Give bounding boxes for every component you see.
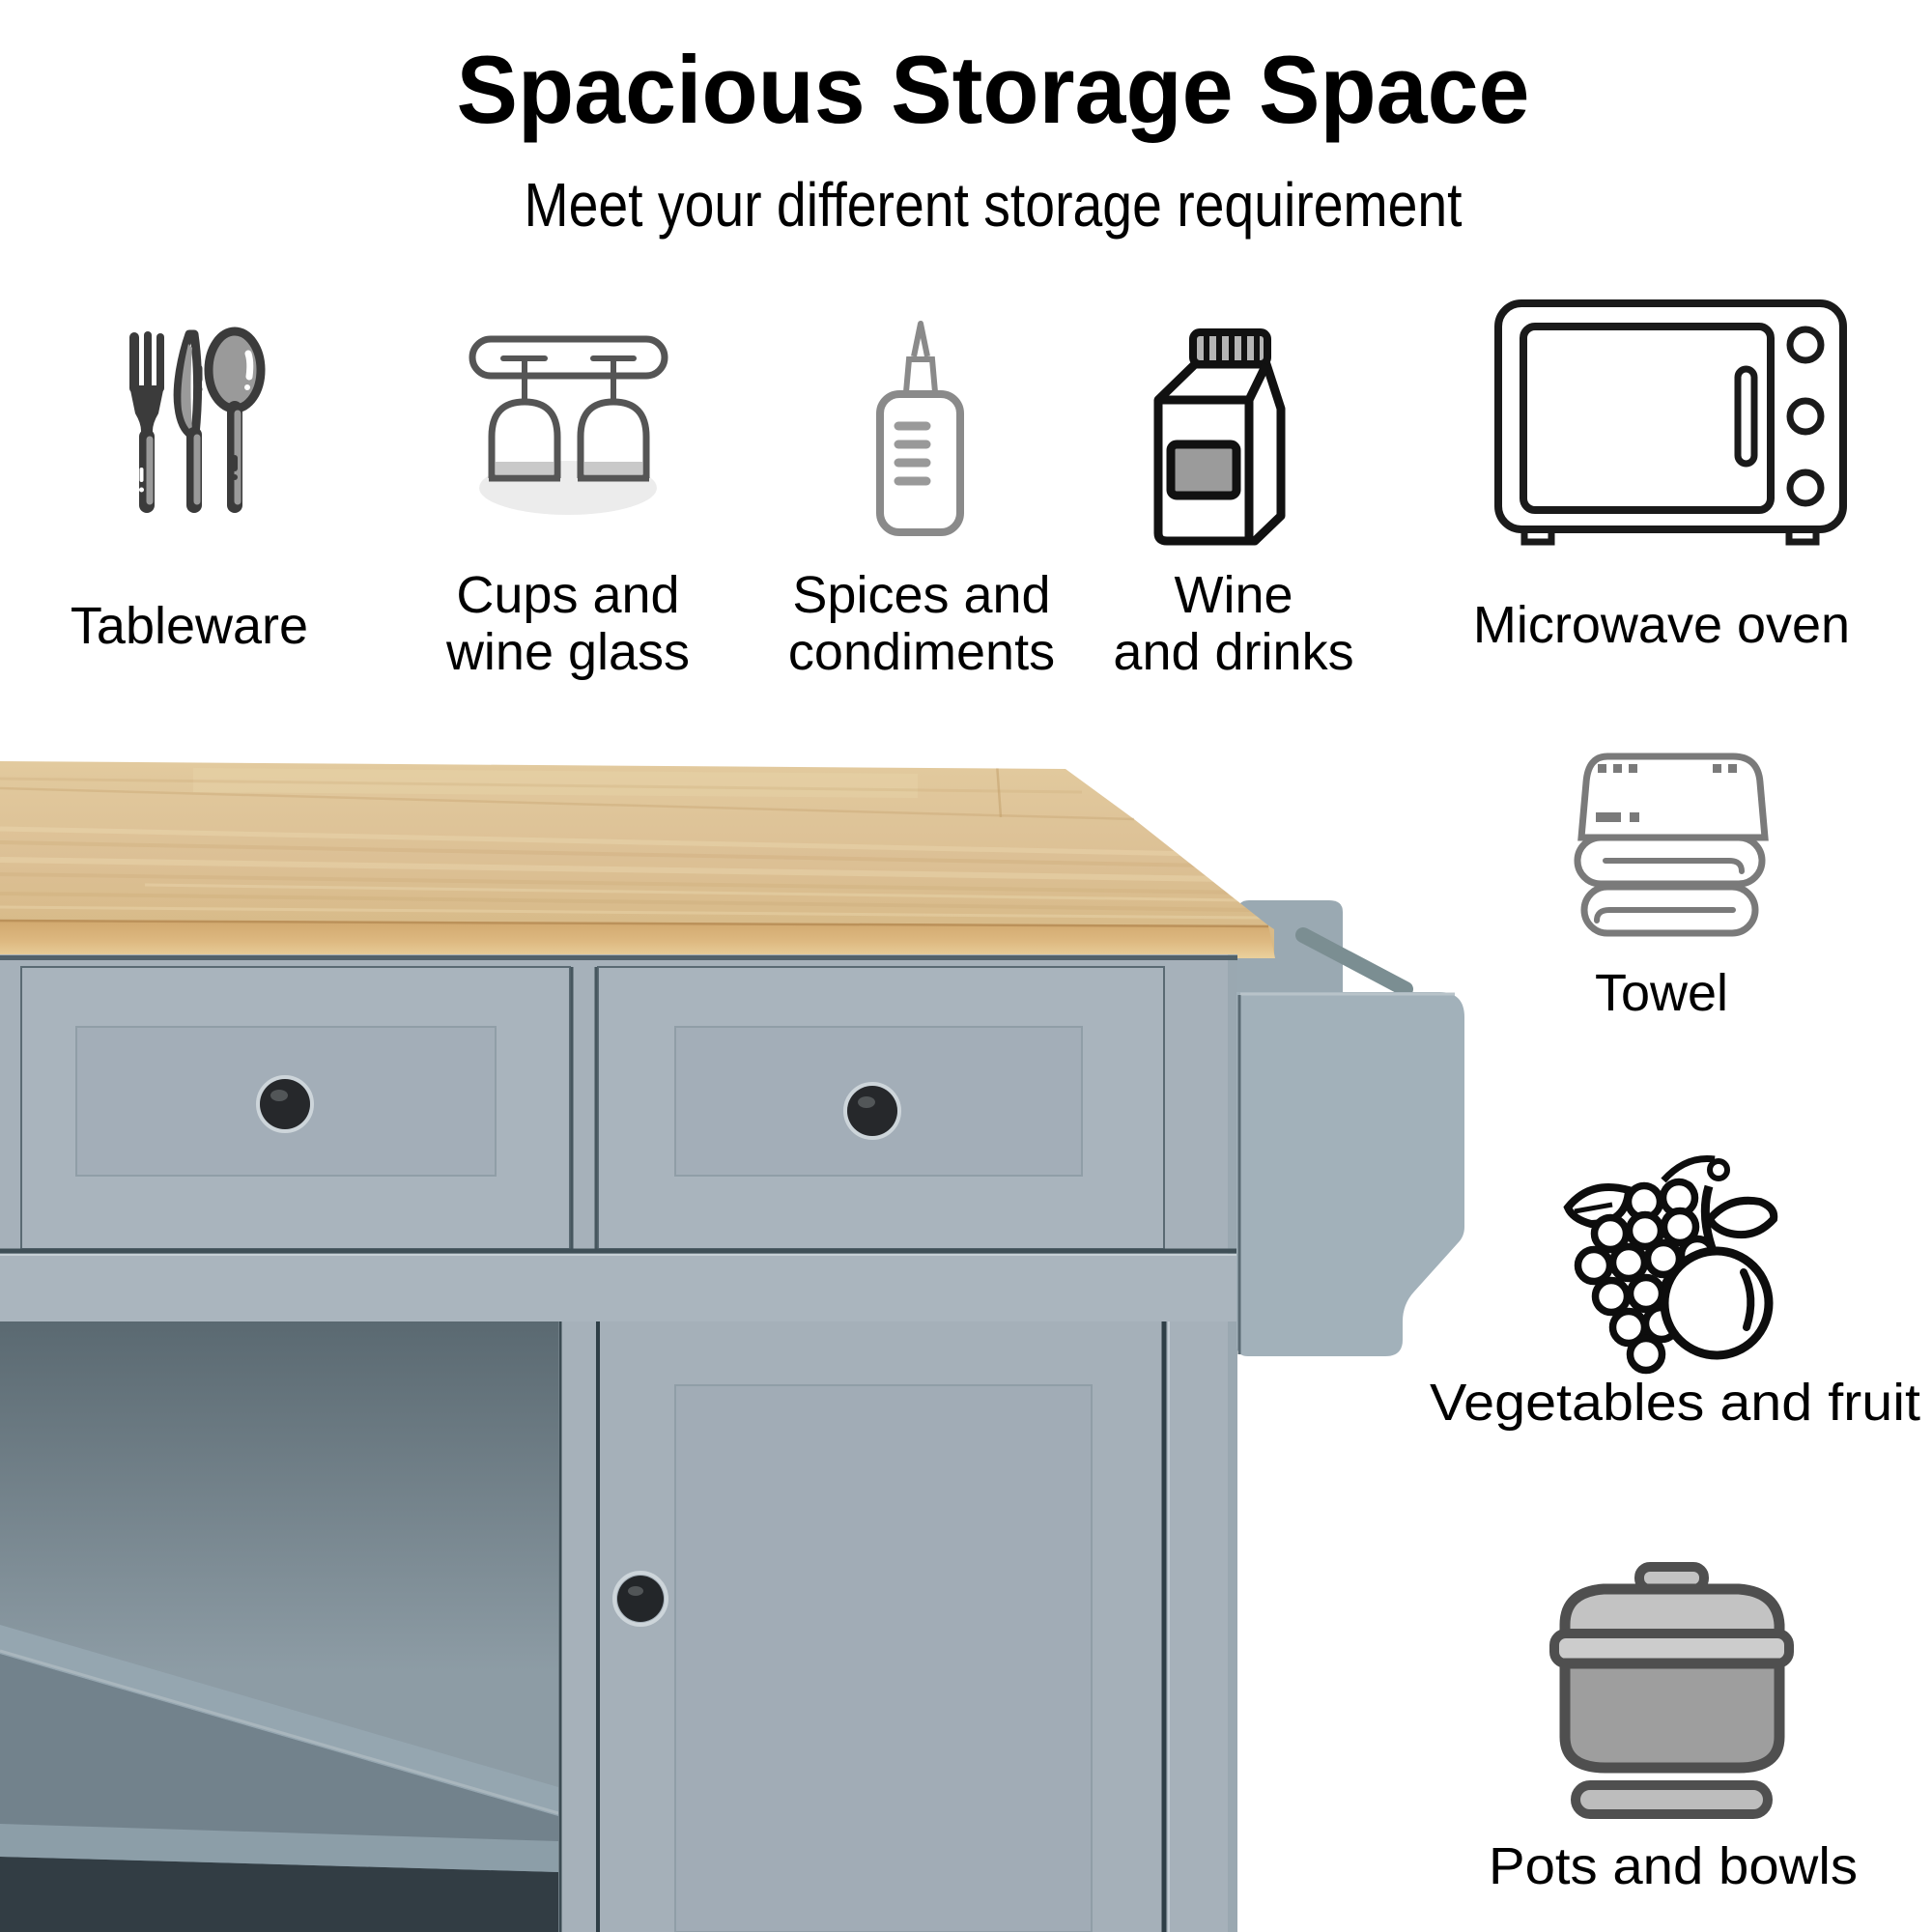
svg-text:Spices and: Spices and	[792, 566, 1050, 624]
svg-text:Spacious Storage Space: Spacious Storage Space	[457, 36, 1530, 143]
svg-text:Meet your different storage re: Meet your different storage requirement	[525, 170, 1463, 240]
svg-text:Wine: Wine	[1174, 566, 1293, 624]
svg-text:Vegetables and fruit: Vegetables and fruit	[1430, 1374, 1920, 1432]
svg-text:Towel: Towel	[1595, 964, 1728, 1022]
svg-text:Microwave oven: Microwave oven	[1473, 596, 1850, 654]
svg-text:Tableware: Tableware	[71, 597, 308, 655]
svg-text:condiments: condiments	[788, 623, 1055, 681]
svg-text:wine glass: wine glass	[445, 623, 690, 681]
svg-text:Pots and bowls: Pots and bowls	[1489, 1837, 1858, 1895]
svg-text:Cups and: Cups and	[456, 566, 679, 624]
svg-text:and drinks: and drinks	[1113, 623, 1353, 681]
